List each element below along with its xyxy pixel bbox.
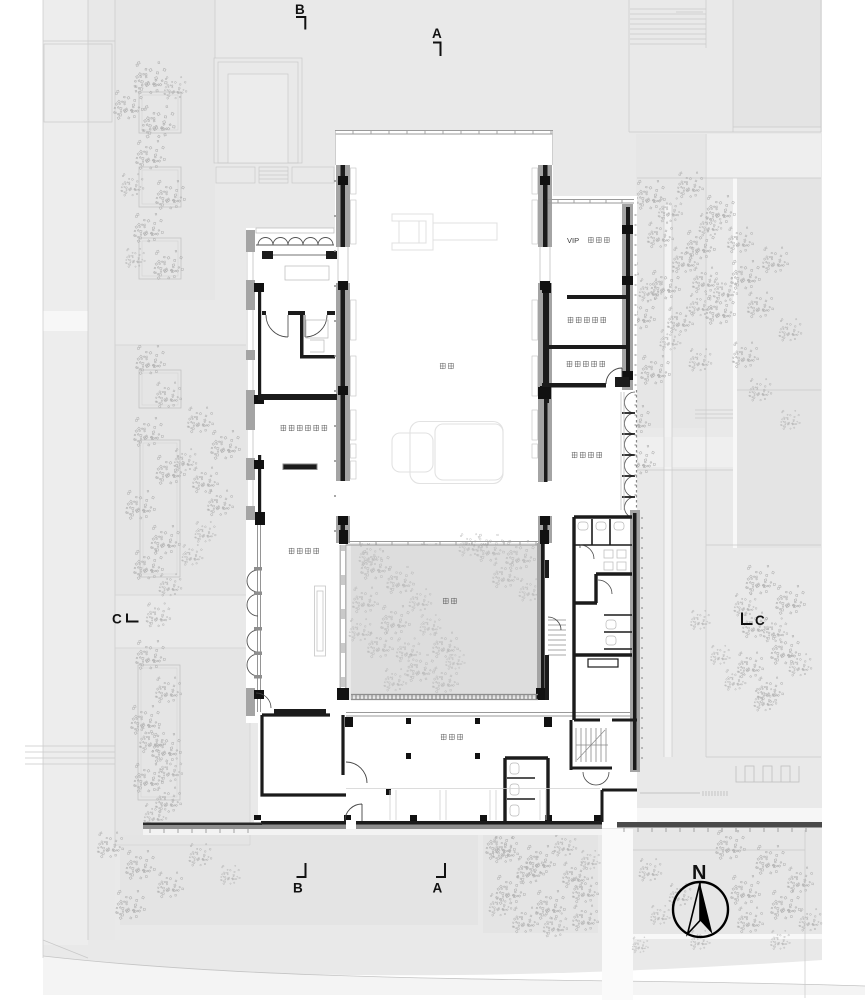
svg-text:C: C [755, 613, 765, 628]
svg-text:A: A [433, 881, 443, 896]
svg-text:VIP: VIP [567, 236, 579, 245]
svg-text:C: C [112, 612, 122, 627]
svg-text:N: N [692, 862, 706, 884]
svg-text:A: A [432, 26, 442, 41]
svg-text:B: B [293, 881, 303, 896]
svg-text:B: B [295, 2, 305, 17]
